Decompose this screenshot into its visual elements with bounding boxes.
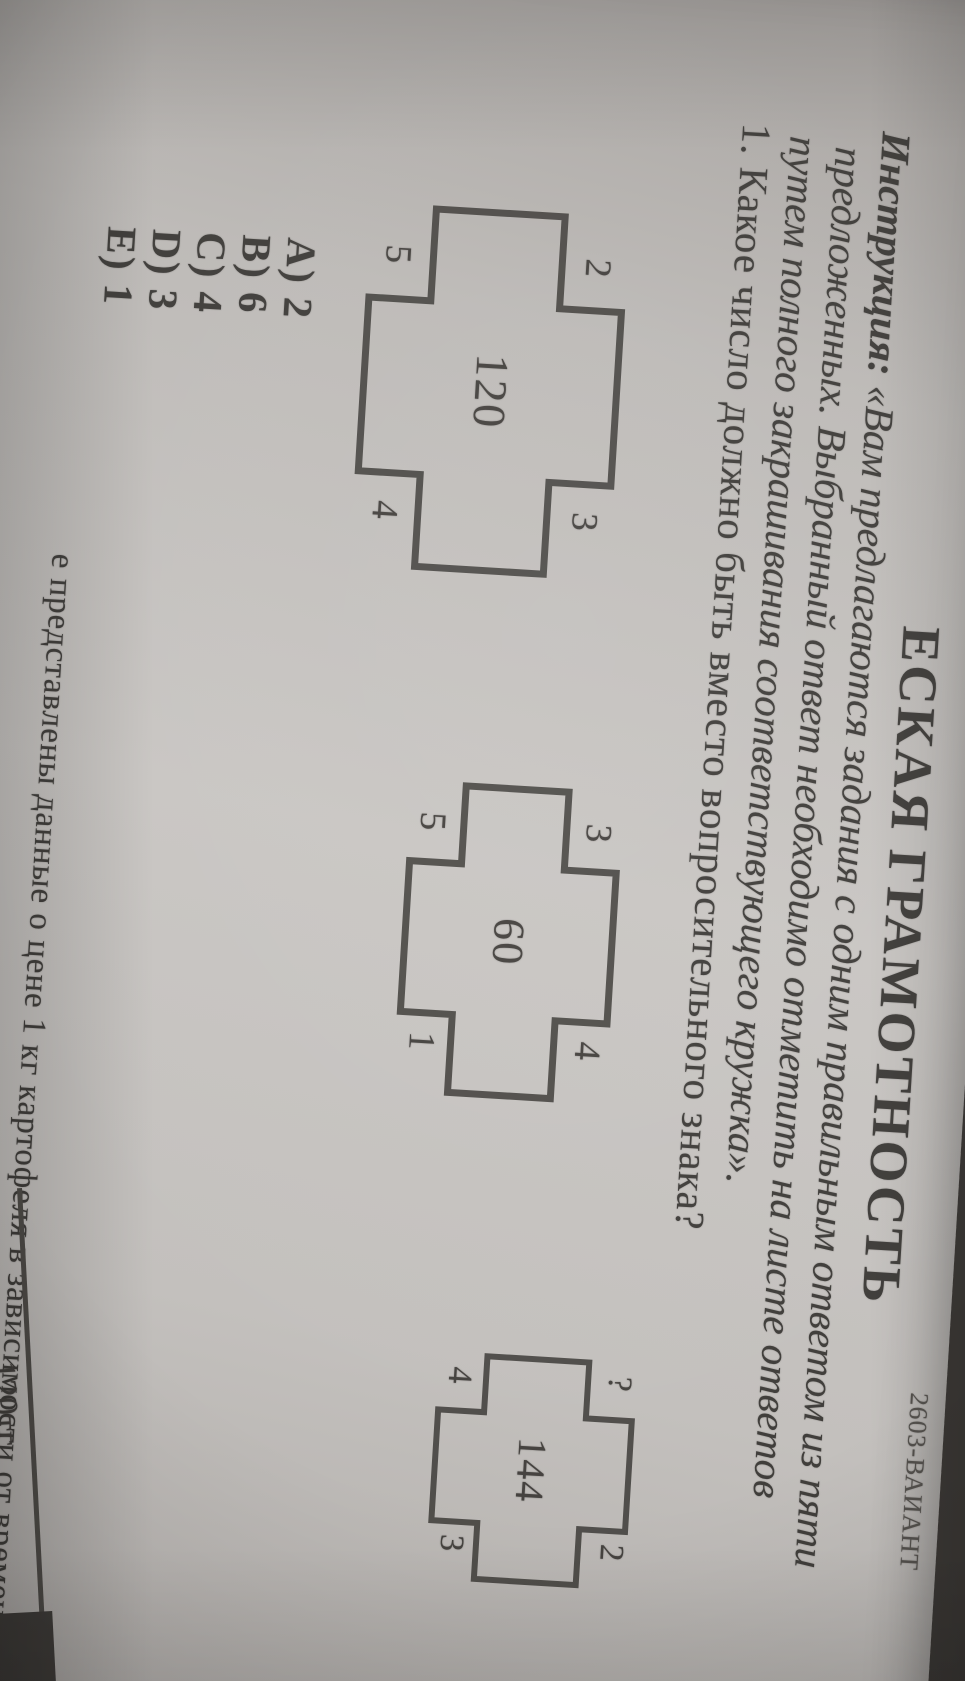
answer-option-a: A) 2	[276, 237, 322, 321]
figure-cross-2: 3 4 5 1 60	[391, 779, 625, 1107]
figure-corner-label: 5	[414, 811, 452, 832]
variant-code: 2603-ВАИАНТ	[895, 1392, 932, 1572]
figure-corner-label: 2	[579, 258, 617, 279]
figure-corner-label: 3	[565, 512, 603, 533]
figure-cross-3: ? 2 4 3 144	[424, 1349, 640, 1592]
figure-corner-label: ?	[602, 1375, 637, 1392]
figure-corner-label: 4	[568, 1041, 606, 1062]
answer-option-e: E) 1	[97, 226, 143, 308]
answer-option-d: D) 3	[142, 228, 188, 312]
figure-corner-label: 1	[402, 1031, 440, 1052]
table-cell-price: 120тг	[0, 1360, 25, 1446]
figure-corner-label: 3	[434, 1533, 469, 1552]
figure-cross-1: 2 3 5 4 120	[348, 201, 631, 582]
answer-option-c: C) 4	[187, 231, 233, 315]
figure-corner-label: 2	[593, 1543, 628, 1562]
figure-corner-label: 3	[579, 823, 617, 844]
figure-corner-label: 4	[442, 1366, 477, 1385]
answer-option-b: B) 6	[232, 234, 278, 316]
photo-of-test-page: 2603-ВАИАНТ ЕСКАЯ ГРАМОТНОСТЬ Инструкция…	[0, 0, 965, 1681]
figure-corner-label: 5	[379, 244, 417, 265]
figure-corner-label: 4	[365, 499, 403, 520]
paper-sheet: 2603-ВАИАНТ ЕСКАЯ ГРАМОТНОСТЬ Инструкция…	[0, 0, 965, 1681]
